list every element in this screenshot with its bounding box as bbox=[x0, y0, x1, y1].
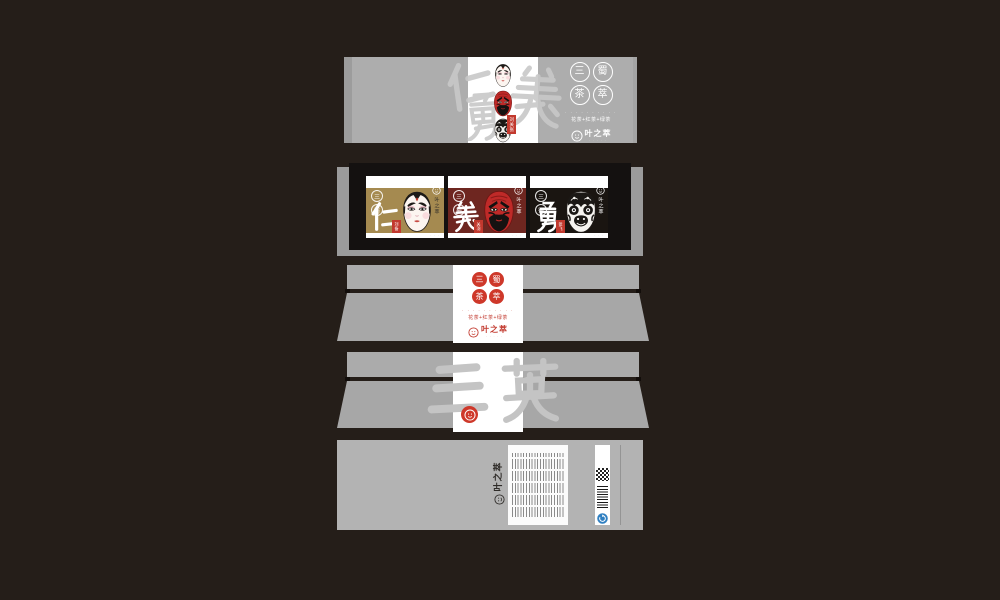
brand-micro: · · · · · bbox=[585, 139, 612, 142]
seal-face-icon bbox=[596, 186, 605, 195]
card-color-field: 三 蜀 关羽 叶之萃 bbox=[448, 188, 526, 233]
seal-face-icon bbox=[494, 494, 505, 505]
seal-grid: 三 蜀 茶 萃 bbox=[570, 62, 613, 105]
lid-logo-block: 三 蜀 茶 萃 · · · · · · · · · · 花茶+红茶+绿茶 叶之萃… bbox=[557, 62, 625, 140]
seal-face-icon bbox=[571, 130, 583, 142]
seal-stamp: 蜀 bbox=[489, 272, 504, 287]
seal-stamp: 茶 bbox=[472, 289, 487, 304]
qr-code bbox=[596, 468, 609, 481]
seal-face-icon bbox=[514, 186, 523, 195]
product-line: 花茶+红茶+绿茶 bbox=[571, 116, 611, 123]
seal-stamp: 萃 bbox=[593, 85, 613, 105]
seal-stamp: 蜀 bbox=[593, 62, 613, 82]
fine-print-texture bbox=[512, 453, 564, 517]
calligraphy-watermark bbox=[419, 352, 567, 430]
hero-card-yi: 三 蜀 关羽 叶之萃 · · · bbox=[448, 176, 526, 238]
panel-back: 叶之萃 · · · · bbox=[337, 440, 643, 530]
card-color-field: 三 蜀 张飞 叶之萃 bbox=[530, 188, 608, 233]
code-strip bbox=[595, 445, 610, 525]
lid-side-tab-right bbox=[633, 57, 637, 143]
inner-lid-logo-block: 三 蜀 茶 萃 · · · · · · · · · · 花茶+红茶+绿茶 叶之萃… bbox=[453, 265, 523, 343]
fine-print-block bbox=[508, 445, 568, 525]
brand-name: 叶之萃 bbox=[493, 462, 503, 492]
recycle-icon bbox=[597, 513, 608, 524]
seal-face-icon bbox=[464, 409, 476, 421]
seal-stamp: 茶 bbox=[570, 85, 590, 105]
red-seal-stamp bbox=[461, 406, 478, 423]
micro-caption: · · · · · · · · · · bbox=[565, 110, 617, 115]
panel-tray bbox=[337, 352, 649, 432]
fold-line bbox=[620, 445, 621, 525]
seal-stamp: 萃 bbox=[489, 289, 504, 304]
seal-face-icon bbox=[432, 186, 441, 195]
fold-notch bbox=[636, 289, 641, 293]
hero-seal: 张飞 bbox=[556, 220, 565, 233]
card-brand-column: 叶之萃 bbox=[594, 186, 606, 232]
panel-lid: 刘关张 三 蜀 茶 萃 · · · · · · · · · · 花茶+红茶+绿茶… bbox=[344, 57, 637, 143]
product-line: 花茶+红茶+绿茶 bbox=[468, 314, 508, 321]
card-brand-column: 叶之萃 bbox=[512, 186, 524, 232]
hero-seal: 关羽 bbox=[474, 220, 483, 233]
card-color-field: 三 蜀 刘备 叶之萃 bbox=[366, 188, 444, 233]
red-face-mask bbox=[488, 89, 518, 117]
red-name-tag: 刘关张 bbox=[507, 115, 516, 134]
panel-cards: 三 蜀 刘备 叶之萃 · · · 三 蜀 bbox=[337, 163, 643, 256]
yezhicui-logo-rotated: 叶之萃 · · · · bbox=[491, 454, 507, 512]
seal-stamp: 三 bbox=[570, 62, 590, 82]
brand-name-vertical: 叶之萃 bbox=[598, 197, 603, 215]
yezhicui-logo: 叶之萃 · · · · · bbox=[571, 130, 612, 142]
hero-card-ren: 三 蜀 刘备 叶之萃 · · · bbox=[366, 176, 444, 238]
fold-notch bbox=[636, 377, 641, 381]
brand-name-vertical: 叶之萃 bbox=[516, 197, 521, 215]
brand-name: 叶之萃 bbox=[481, 326, 508, 334]
fold-notch bbox=[345, 377, 350, 381]
hero-card-yong: 三 蜀 张飞 叶之萃 · · · bbox=[530, 176, 608, 238]
panel-inner-lid: 三 蜀 茶 萃 · · · · · · · · · · 花茶+红茶+绿茶 叶之萃… bbox=[337, 265, 649, 343]
seal-stamp: 三 bbox=[472, 272, 487, 287]
yezhicui-logo: 叶之萃 · · · · · bbox=[468, 326, 508, 338]
brand-name-vertical: 叶之萃 bbox=[434, 197, 439, 215]
card-brand-column: 叶之萃 bbox=[430, 186, 442, 232]
micro-caption: · · · · · · · · · · bbox=[462, 308, 514, 313]
seal-grid: 三 蜀 茶 萃 bbox=[472, 272, 504, 304]
white-face-mask bbox=[490, 62, 516, 88]
fold-notch bbox=[345, 289, 350, 293]
seal-face-icon bbox=[468, 327, 479, 338]
design-board: 刘关张 三 蜀 茶 萃 · · · · · · · · · · 花茶+红茶+绿茶… bbox=[0, 0, 1000, 600]
hero-seal: 刘备 bbox=[392, 220, 401, 233]
brand-micro: · · · · · bbox=[481, 335, 508, 338]
lid-side-tab-left bbox=[344, 57, 352, 143]
brand-name: 叶之萃 bbox=[585, 130, 612, 138]
barcode bbox=[597, 486, 608, 508]
